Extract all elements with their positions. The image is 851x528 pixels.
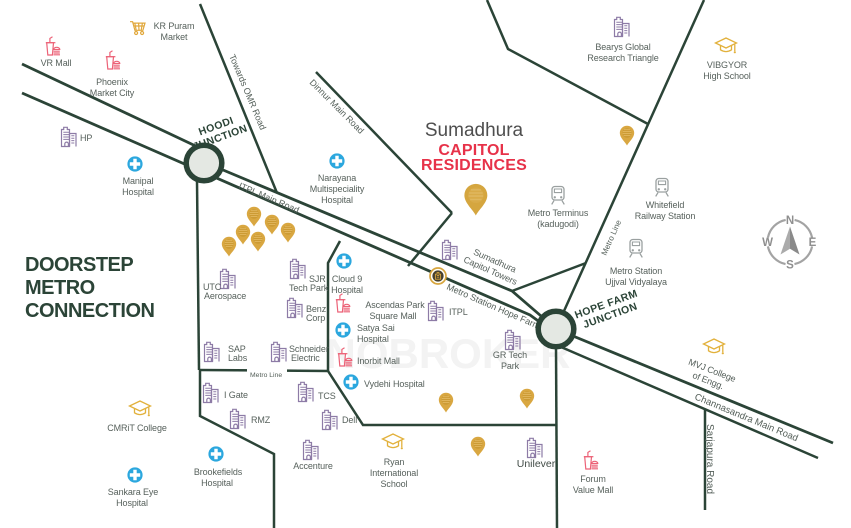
svg-text:RESIDENCES: RESIDENCES [421,157,527,174]
svg-text:Vydehi Hospital: Vydehi Hospital [364,379,425,389]
svg-text:CONNECTION: CONNECTION [25,300,155,322]
svg-text:Phoenix: Phoenix [96,77,128,87]
svg-text:S: S [786,260,794,272]
svg-text:KR Puram: KR Puram [154,21,195,31]
svg-text:Railway Station: Railway Station [635,211,696,221]
svg-text:Dell: Dell [342,415,357,425]
svg-text:Research Triangle: Research Triangle [587,53,658,63]
svg-text:Multispeciality: Multispeciality [310,184,365,194]
svg-text:CMRiT College: CMRiT College [107,423,167,433]
svg-text:Park: Park [501,361,520,371]
svg-text:(kadugodi): (kadugodi) [537,219,579,229]
svg-text:Cloud 9: Cloud 9 [332,274,362,284]
svg-text:Electric: Electric [291,353,320,363]
svg-text:Value Mall: Value Mall [573,485,613,495]
svg-text:GR Tech: GR Tech [493,350,527,360]
svg-text:TCS: TCS [318,391,336,401]
svg-text:Narayana: Narayana [318,173,356,183]
svg-text:Square Mall: Square Mall [370,311,417,321]
svg-text:Forum: Forum [580,474,606,484]
svg-text:Ascendas Park: Ascendas Park [365,300,425,310]
svg-text:Satya Sai: Satya Sai [357,323,395,333]
svg-text:Whitefield: Whitefield [646,200,685,210]
svg-text:E: E [809,237,817,249]
svg-text:Labs: Labs [228,353,248,363]
svg-text:N: N [786,215,794,227]
svg-text:Inorbit Mall: Inorbit Mall [357,356,400,366]
svg-text:Hospital: Hospital [116,498,148,508]
svg-text:Dinnur Main Road: Dinnur Main Road [308,77,366,135]
svg-text:Sumadhura: Sumadhura [425,120,524,141]
svg-text:Corp: Corp [306,313,325,323]
svg-text:Hospital: Hospital [331,285,363,295]
svg-text:International: International [370,468,418,478]
svg-text:Bearys Global: Bearys Global [595,42,650,52]
svg-text:RMZ: RMZ [251,415,271,425]
svg-text:Ujjval Vidyalaya: Ujjval Vidyalaya [605,277,667,287]
svg-text:Market City: Market City [90,88,135,98]
svg-text:Tech Park: Tech Park [289,283,329,293]
svg-text:Unilever: Unilever [517,458,556,470]
svg-text:Ryan: Ryan [384,457,405,467]
svg-text:W: W [762,237,773,249]
svg-text:Metro Station: Metro Station [610,266,662,276]
svg-text:School: School [381,479,408,489]
svg-text:Hospital: Hospital [122,187,154,197]
svg-text:METRO: METRO [25,277,95,299]
svg-text:Hospital: Hospital [357,334,389,344]
svg-text:VIBGYOR: VIBGYOR [707,60,748,70]
svg-text:ITPL: ITPL [449,307,468,317]
svg-text:VR Mall: VR Mall [41,58,72,68]
svg-text:High School: High School [703,71,751,81]
svg-text:Sankara Eye: Sankara Eye [108,487,159,497]
svg-text:Hospital: Hospital [201,478,233,488]
svg-text:Manipal: Manipal [123,176,154,186]
svg-text:Hospital: Hospital [321,195,353,205]
svg-text:Aerospace: Aerospace [204,291,246,301]
svg-text:Metro Line: Metro Line [250,372,282,379]
svg-text:Brookefields: Brookefields [194,467,243,477]
svg-text:Accenture: Accenture [293,461,333,471]
svg-text:DOORSTEP: DOORSTEP [25,254,133,276]
svg-text:Sarjapura Road: Sarjapura Road [704,424,715,494]
svg-text:Market: Market [161,32,189,42]
svg-text:I Gate: I Gate [224,390,248,400]
svg-text:HP: HP [80,133,92,143]
svg-text:Metro Terminus: Metro Terminus [528,208,589,218]
